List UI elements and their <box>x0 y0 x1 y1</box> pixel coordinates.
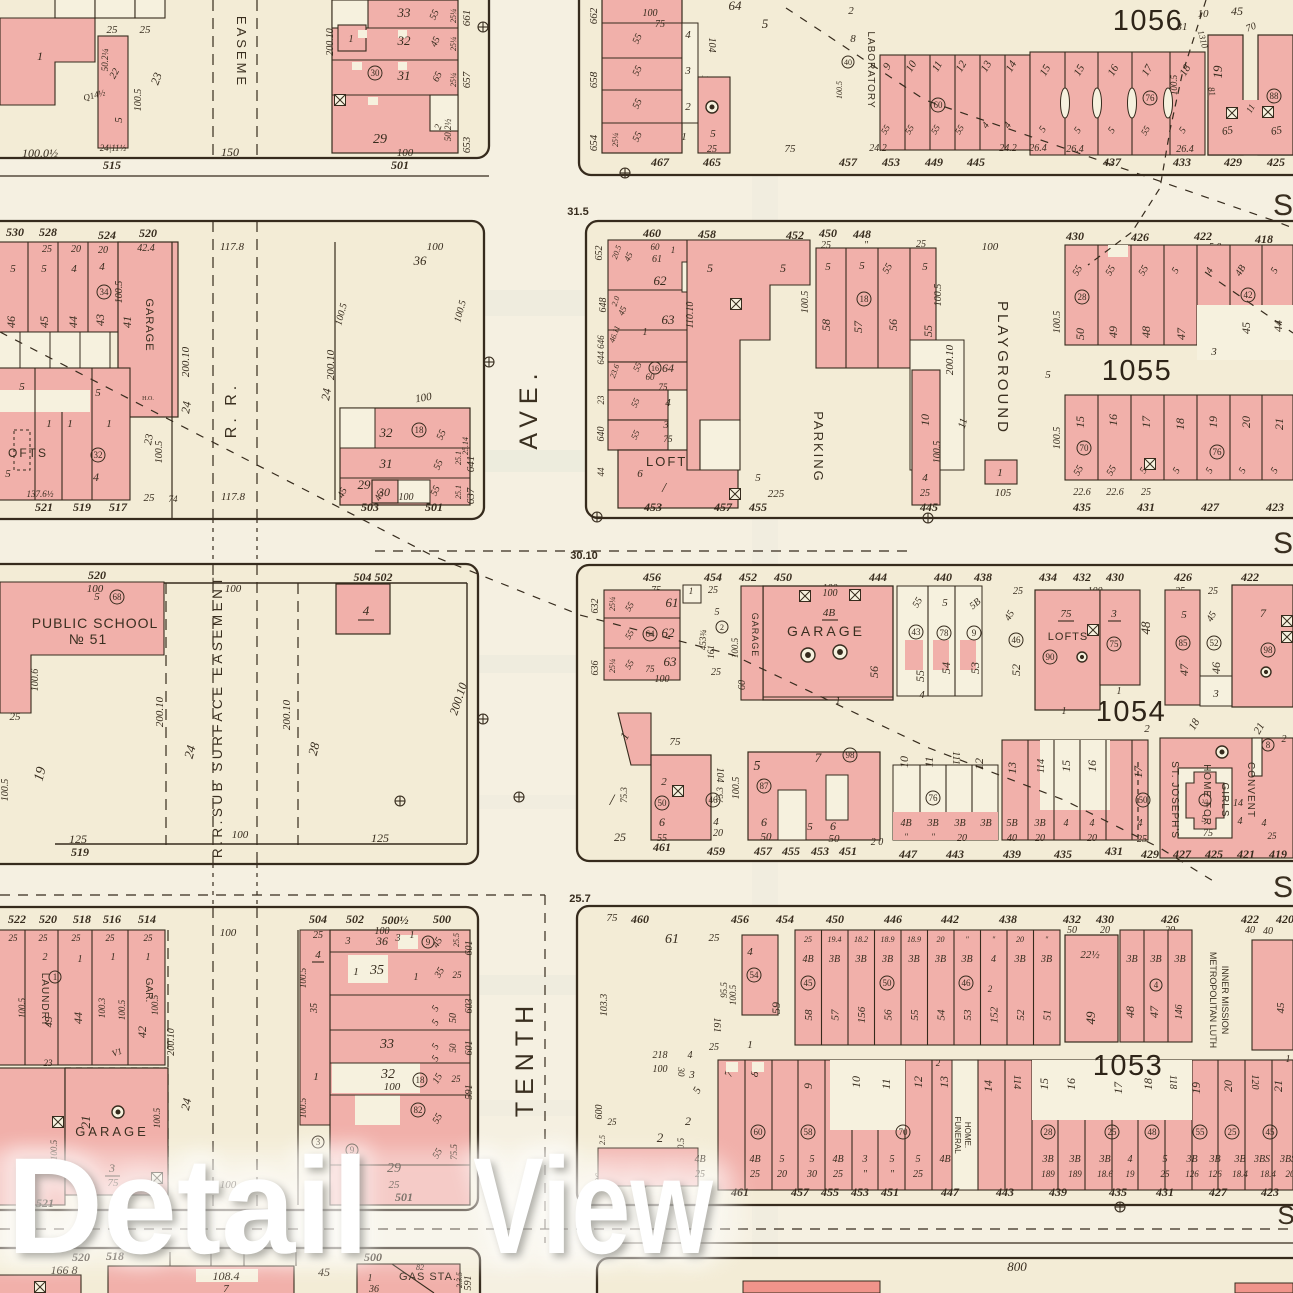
svg-text:25.14: 25.14 <box>461 437 470 455</box>
svg-text:4: 4 <box>1154 980 1159 990</box>
svg-text:2 0: 2 0 <box>871 837 884 848</box>
svg-text:PLAYGROUND: PLAYGROUND <box>994 301 1011 435</box>
svg-text:3B: 3B <box>828 954 840 965</box>
svg-text:75: 75 <box>670 736 682 748</box>
svg-text:28: 28 <box>1078 292 1088 302</box>
svg-text:1: 1 <box>747 1039 753 1051</box>
svg-text:5: 5 <box>942 597 948 609</box>
svg-text:9: 9 <box>801 1083 815 1089</box>
svg-text:2: 2 <box>936 1058 941 1068</box>
svg-text:17: 17 <box>1111 1081 1125 1094</box>
svg-text:457: 457 <box>753 844 773 858</box>
svg-text:12: 12 <box>972 758 986 770</box>
svg-text:61: 61 <box>652 254 662 265</box>
svg-text:601: 601 <box>464 941 475 956</box>
svg-text:46: 46 <box>1209 662 1223 674</box>
svg-text:3B: 3B <box>926 818 938 829</box>
svg-text:4: 4 <box>991 954 996 965</box>
svg-text:2: 2 <box>988 984 993 994</box>
svg-text:20: 20 <box>957 833 967 844</box>
svg-text:500: 500 <box>433 912 451 926</box>
svg-text:18.9: 18.9 <box>907 935 921 944</box>
svg-text:33: 33 <box>397 5 412 20</box>
svg-text:18.4: 18.4 <box>1232 1169 1248 1179</box>
svg-text:218: 218 <box>653 1050 668 1061</box>
svg-text:200.10: 200.10 <box>154 696 166 727</box>
svg-text:515: 515 <box>103 158 121 172</box>
svg-text:454: 454 <box>775 912 794 926</box>
svg-text:453: 453 <box>850 1185 869 1199</box>
svg-text:25: 25 <box>750 1169 760 1180</box>
svg-text:19: 19 <box>1126 1169 1136 1179</box>
svg-text:429: 429 <box>1140 847 1159 861</box>
svg-text:114: 114 <box>1036 759 1047 773</box>
svg-text:503: 503 <box>361 500 379 514</box>
svg-text:100.5: 100.5 <box>298 967 308 988</box>
svg-text:51: 51 <box>1042 1010 1054 1021</box>
svg-text:455: 455 <box>781 844 800 858</box>
svg-text:3B: 3B <box>1068 1154 1080 1165</box>
svg-text:117.8: 117.8 <box>221 491 245 503</box>
svg-text:431: 431 <box>1136 500 1155 514</box>
svg-text:640: 640 <box>596 427 607 442</box>
svg-text:20: 20 <box>1087 833 1097 844</box>
svg-text:21: 21 <box>1272 418 1286 430</box>
svg-text:1054: 1054 <box>1096 696 1167 728</box>
svg-text:426: 426 <box>1160 912 1179 926</box>
svg-text:FUNERAL: FUNERAL <box>953 1116 962 1154</box>
svg-text:4: 4 <box>919 689 925 701</box>
svg-text:25: 25 <box>313 930 323 941</box>
svg-text:25¼: 25¼ <box>611 133 620 147</box>
svg-text:25: 25 <box>709 932 721 944</box>
svg-text:2: 2 <box>685 101 691 113</box>
svg-text:GAS STA.: GAS STA. <box>399 1271 457 1283</box>
svg-text:25: 25 <box>106 933 116 943</box>
svg-text:1: 1 <box>410 930 415 941</box>
svg-text:2: 2 <box>661 776 667 788</box>
svg-text:5: 5 <box>807 821 813 833</box>
svg-text:648: 648 <box>598 298 609 313</box>
svg-text:103.3: 103.3 <box>599 994 610 1017</box>
svg-text:75.3: 75.3 <box>715 787 725 803</box>
svg-text:59: 59 <box>769 1002 783 1014</box>
svg-text:654: 654 <box>588 134 600 151</box>
svg-text:18: 18 <box>860 294 870 304</box>
svg-text:444: 444 <box>868 570 887 584</box>
svg-text:430: 430 <box>1095 912 1114 926</box>
svg-text:2: 2 <box>1282 734 1287 745</box>
svg-text:43: 43 <box>912 627 922 637</box>
svg-text:5: 5 <box>710 128 716 140</box>
svg-text:161: 161 <box>706 645 716 659</box>
svg-text:23: 23 <box>44 1058 54 1068</box>
svg-text:75: 75 <box>1061 608 1073 620</box>
svg-text:100.5: 100.5 <box>1052 311 1063 334</box>
svg-text:100: 100 <box>232 829 249 841</box>
svg-text:70: 70 <box>899 1127 909 1137</box>
svg-text:60: 60 <box>646 372 656 382</box>
svg-text:189: 189 <box>1068 1169 1082 1179</box>
svg-text:460: 460 <box>630 912 649 926</box>
svg-text:": " <box>931 832 935 842</box>
svg-text:450: 450 <box>773 570 792 584</box>
svg-text:26.4: 26.4 <box>1176 144 1194 155</box>
svg-text:50: 50 <box>1073 328 1087 340</box>
svg-text:457: 457 <box>713 500 733 514</box>
svg-text:60: 60 <box>651 242 661 252</box>
svg-text:4: 4 <box>71 263 77 275</box>
svg-text:439: 439 <box>1002 847 1021 861</box>
svg-text:524: 524 <box>98 228 116 242</box>
svg-text:57: 57 <box>830 1009 842 1021</box>
svg-text:457: 457 <box>838 155 858 169</box>
svg-text:100.5: 100.5 <box>800 291 811 314</box>
svg-text:63: 63 <box>662 312 676 327</box>
svg-text:24|11½: 24|11½ <box>100 143 127 153</box>
svg-text:100.5: 100.5 <box>728 984 738 1005</box>
svg-text:100.5: 100.5 <box>0 779 11 802</box>
svg-text:652: 652 <box>594 246 605 261</box>
svg-text:447: 447 <box>940 1185 960 1199</box>
svg-text:225: 225 <box>768 488 785 500</box>
svg-text:422: 422 <box>1240 912 1259 926</box>
svg-text:126: 126 <box>1208 1169 1222 1179</box>
svg-text:111: 111 <box>950 751 961 765</box>
svg-text:636: 636 <box>590 661 601 676</box>
svg-text:3B: 3B <box>1040 954 1052 965</box>
svg-text:601: 601 <box>464 1041 475 1056</box>
svg-text:644 646: 644 646 <box>596 335 606 365</box>
svg-text:55: 55 <box>1196 1127 1206 1137</box>
svg-text:20: 20 <box>1286 1169 1293 1179</box>
svg-text:4: 4 <box>1262 818 1267 829</box>
svg-text:25: 25 <box>144 492 156 504</box>
svg-text:6: 6 <box>659 815 665 829</box>
svg-text:45: 45 <box>1275 1002 1287 1014</box>
svg-text:50: 50 <box>448 1043 458 1053</box>
svg-text:200.10: 200.10 <box>325 28 336 56</box>
svg-text:3B: 3B <box>1208 1154 1220 1165</box>
svg-text:452: 452 <box>738 570 757 584</box>
svg-text:50: 50 <box>883 978 893 988</box>
svg-text:1: 1 <box>1286 1054 1291 1065</box>
svg-text:3: 3 <box>345 936 351 947</box>
svg-text:5: 5 <box>1202 814 1207 825</box>
svg-text:24: 24 <box>318 387 334 401</box>
svg-text:20: 20 <box>1100 925 1110 936</box>
svg-text:6: 6 <box>761 815 767 829</box>
svg-text:55: 55 <box>909 1009 921 1021</box>
svg-text:156: 156 <box>856 1006 868 1023</box>
svg-text:40: 40 <box>1263 926 1273 937</box>
svg-text:632: 632 <box>590 599 601 614</box>
svg-text:10: 10 <box>849 1076 863 1088</box>
svg-text:25: 25 <box>1208 586 1218 597</box>
svg-text:19: 19 <box>1210 65 1225 79</box>
svg-text:5: 5 <box>780 261 786 275</box>
svg-text:5: 5 <box>1181 609 1187 621</box>
svg-text:456: 456 <box>730 912 749 926</box>
svg-text:54: 54 <box>936 1009 948 1021</box>
svg-text:29: 29 <box>358 477 372 492</box>
svg-text:3: 3 <box>1110 608 1117 620</box>
svg-text:19: 19 <box>1189 1082 1203 1094</box>
svg-text:30: 30 <box>676 1067 686 1078</box>
svg-text:46: 46 <box>962 978 972 988</box>
svg-text:3B: 3B <box>1033 818 1045 829</box>
svg-text:5: 5 <box>922 261 928 273</box>
svg-text:104: 104 <box>714 768 725 783</box>
svg-text:45: 45 <box>1266 1127 1276 1137</box>
svg-text:458: 458 <box>697 227 716 241</box>
svg-text:18.4: 18.4 <box>1260 1169 1276 1179</box>
svg-text:33: 33 <box>379 1037 394 1052</box>
svg-text:70: 70 <box>1080 443 1090 453</box>
svg-text:58: 58 <box>819 319 833 331</box>
svg-text:48: 48 <box>1148 1127 1158 1137</box>
svg-text:INNER MISSION: INNER MISSION <box>1220 966 1230 1035</box>
svg-text:75: 75 <box>659 382 669 392</box>
svg-text:445: 445 <box>966 155 985 169</box>
svg-text:64: 64 <box>662 361 674 375</box>
svg-text:4: 4 <box>99 261 105 273</box>
svg-text:23: 23 <box>596 395 606 405</box>
svg-text:PUBLIC SCHOOL: PUBLIC SCHOOL <box>32 615 159 631</box>
svg-text:26.4: 26.4 <box>1066 144 1084 155</box>
svg-text:52: 52 <box>1210 638 1219 648</box>
svg-text:3: 3 <box>688 1069 695 1081</box>
svg-text:25¼: 25¼ <box>449 9 458 23</box>
svg-text:5: 5 <box>755 472 761 484</box>
svg-text:450: 450 <box>825 912 844 926</box>
svg-text:16: 16 <box>1064 1078 1078 1090</box>
svg-text:18.9: 18.9 <box>881 935 895 944</box>
svg-text:45: 45 <box>1231 4 1243 18</box>
svg-text:16: 16 <box>1085 760 1099 772</box>
svg-text:18: 18 <box>415 425 425 435</box>
svg-text:44: 44 <box>1271 320 1285 332</box>
svg-text:42.4: 42.4 <box>137 243 155 254</box>
svg-text:501: 501 <box>391 158 409 172</box>
svg-text:461: 461 <box>652 840 671 854</box>
svg-text:1: 1 <box>146 952 151 963</box>
svg-text:152: 152 <box>989 1006 1001 1023</box>
svg-text:55: 55 <box>921 325 935 337</box>
svg-text:40: 40 <box>1245 925 1255 936</box>
svg-text:40: 40 <box>1007 833 1017 844</box>
svg-text:519: 519 <box>73 500 91 514</box>
svg-text:52: 52 <box>1009 664 1023 676</box>
svg-text:423: 423 <box>1265 500 1284 514</box>
svg-text:S: S <box>1273 189 1293 222</box>
svg-text:EASEME: EASEME <box>234 16 249 88</box>
svg-text:45: 45 <box>37 316 51 328</box>
svg-text:3: 3 <box>663 420 669 431</box>
svg-text:1: 1 <box>1062 706 1067 717</box>
svg-text:440: 440 <box>933 570 952 584</box>
svg-text:519: 519 <box>71 845 89 859</box>
svg-text:518: 518 <box>73 912 91 926</box>
svg-text:20: 20 <box>98 245 108 256</box>
svg-text:45: 45 <box>1239 322 1253 334</box>
svg-text:GARAGE: GARAGE <box>143 298 155 351</box>
svg-text:49: 49 <box>1106 326 1120 338</box>
svg-text:662: 662 <box>588 7 600 24</box>
svg-text:12: 12 <box>911 1076 925 1088</box>
svg-text:3B: 3B <box>881 954 893 965</box>
svg-text:603: 603 <box>464 999 475 1014</box>
svg-text:64: 64 <box>729 0 743 13</box>
svg-text:189: 189 <box>1041 1169 1055 1179</box>
svg-text:85: 85 <box>1179 638 1189 648</box>
svg-text:200.10: 200.10 <box>180 346 192 377</box>
svg-text:GARAGE: GARAGE <box>750 613 760 658</box>
svg-text:4: 4 <box>93 470 99 484</box>
svg-text:20: 20 <box>1239 416 1253 428</box>
svg-text:LABORATORY: LABORATORY <box>865 31 876 108</box>
svg-text:600: 600 <box>594 1105 605 1120</box>
svg-text:25: 25 <box>9 933 19 943</box>
svg-text:100.5: 100.5 <box>17 997 27 1018</box>
svg-text:50.2¼: 50.2¼ <box>100 49 110 72</box>
svg-text:CONVENT: CONVENT <box>1245 762 1256 818</box>
svg-text:5: 5 <box>754 759 761 774</box>
svg-text:100: 100 <box>399 492 414 503</box>
svg-text:3: 3 <box>862 1154 868 1165</box>
svg-text:431: 431 <box>1104 844 1123 858</box>
svg-text:GARAGE: GARAGE <box>787 623 865 639</box>
svg-text:447: 447 <box>898 847 918 861</box>
svg-text:1: 1 <box>349 34 354 45</box>
svg-text:25: 25 <box>707 144 717 155</box>
svg-text:450: 450 <box>818 226 837 240</box>
svg-text:5: 5 <box>5 468 11 480</box>
svg-text:443: 443 <box>945 847 964 861</box>
svg-text:146: 146 <box>1174 1005 1185 1020</box>
svg-text:3B: 3B <box>907 954 919 965</box>
svg-text:30: 30 <box>371 68 381 78</box>
svg-text:5: 5 <box>762 16 769 31</box>
svg-text:653: 653 <box>461 136 473 153</box>
svg-text:32: 32 <box>380 1067 395 1082</box>
svg-text:100.5: 100.5 <box>933 284 944 307</box>
svg-text:800: 800 <box>1007 1259 1027 1274</box>
svg-text:442: 442 <box>940 912 959 926</box>
svg-text:47: 47 <box>1174 327 1188 340</box>
svg-text:520: 520 <box>88 568 106 582</box>
svg-text:AVE.: AVE. <box>515 366 543 449</box>
svg-text:110.10: 110.10 <box>685 302 696 329</box>
svg-text:34: 34 <box>100 287 110 297</box>
svg-text:56: 56 <box>867 666 881 678</box>
svg-text:25.7: 25.7 <box>569 893 590 905</box>
svg-text:57: 57 <box>851 320 865 333</box>
svg-text:24: 24 <box>178 400 194 414</box>
svg-text:20: 20 <box>777 1169 787 1180</box>
svg-text:5: 5 <box>715 607 720 618</box>
svg-text:500½: 500½ <box>382 913 409 927</box>
svg-text:68: 68 <box>113 592 123 602</box>
svg-text:88: 88 <box>1270 91 1280 101</box>
svg-text:13: 13 <box>1005 762 1019 774</box>
svg-text:18.2: 18.2 <box>854 935 868 944</box>
svg-text:4B: 4B <box>939 1154 950 1165</box>
svg-text:25: 25 <box>140 24 152 36</box>
svg-text:100.5: 100.5 <box>731 777 742 800</box>
svg-text:4: 4 <box>1238 816 1243 827</box>
svg-text:48: 48 <box>1138 621 1153 635</box>
svg-text:25: 25 <box>913 1169 923 1180</box>
svg-text:100.5: 100.5 <box>835 81 844 99</box>
svg-text:1: 1 <box>353 966 359 978</box>
svg-text:PARKING: PARKING <box>811 411 826 483</box>
svg-text:5: 5 <box>780 1154 785 1165</box>
svg-text:1053: 1053 <box>1093 1050 1164 1082</box>
svg-text:4: 4 <box>688 1050 693 1061</box>
svg-text:25: 25 <box>1228 1127 1238 1137</box>
svg-text:6: 6 <box>637 468 643 480</box>
svg-text:100: 100 <box>643 8 658 19</box>
svg-text:200.10: 200.10 <box>325 349 337 380</box>
svg-text:5: 5 <box>825 261 831 273</box>
svg-text:9: 9 <box>426 937 431 947</box>
svg-text:44: 44 <box>71 1012 85 1024</box>
svg-text:1: 1 <box>643 327 648 338</box>
svg-text:4: 4 <box>665 397 671 409</box>
svg-text:432: 432 <box>1072 570 1091 584</box>
svg-text:HOME.: HOME. <box>963 1122 972 1148</box>
svg-text:10: 10 <box>918 414 932 426</box>
svg-text:87: 87 <box>760 781 770 791</box>
svg-text:4B: 4B <box>749 1154 760 1165</box>
svg-text:1: 1 <box>997 467 1003 479</box>
svg-text:25: 25 <box>1268 831 1278 841</box>
svg-text:56: 56 <box>883 1009 895 1021</box>
svg-text:1: 1 <box>78 954 83 965</box>
svg-text:1: 1 <box>37 49 43 63</box>
svg-text:100.5: 100.5 <box>114 281 125 304</box>
svg-text:46: 46 <box>4 316 18 328</box>
svg-text:200.10: 200.10 <box>166 1028 177 1056</box>
svg-text:516: 516 <box>103 912 121 926</box>
svg-text:1: 1 <box>689 586 694 596</box>
svg-text:15: 15 <box>1037 1078 1051 1090</box>
svg-text:100.5: 100.5 <box>1052 427 1063 450</box>
svg-text:438: 438 <box>998 912 1017 926</box>
svg-text:50: 50 <box>448 1013 459 1023</box>
svg-text:105: 105 <box>995 487 1012 499</box>
svg-text:": " <box>904 832 908 842</box>
svg-text:421: 421 <box>1236 847 1255 861</box>
svg-text:117.8: 117.8 <box>220 241 244 253</box>
svg-text:2: 2 <box>1144 723 1150 735</box>
svg-text:465: 465 <box>702 155 721 169</box>
svg-text:100: 100 <box>225 583 242 595</box>
svg-text:32: 32 <box>94 450 103 460</box>
svg-text:419: 419 <box>1268 847 1287 861</box>
svg-text:100.5: 100.5 <box>932 441 943 464</box>
svg-text:60: 60 <box>737 680 748 690</box>
svg-text:75: 75 <box>646 664 656 674</box>
svg-text:R. R.: R. R. <box>223 382 240 438</box>
svg-text:3B: 3B <box>1041 1154 1053 1165</box>
svg-text:41: 41 <box>120 316 134 328</box>
svg-text:445: 445 <box>919 500 938 514</box>
svg-text:3B: 3B <box>1013 954 1025 965</box>
svg-text:25¼: 25¼ <box>449 37 458 51</box>
svg-text:90: 90 <box>1046 652 1056 662</box>
